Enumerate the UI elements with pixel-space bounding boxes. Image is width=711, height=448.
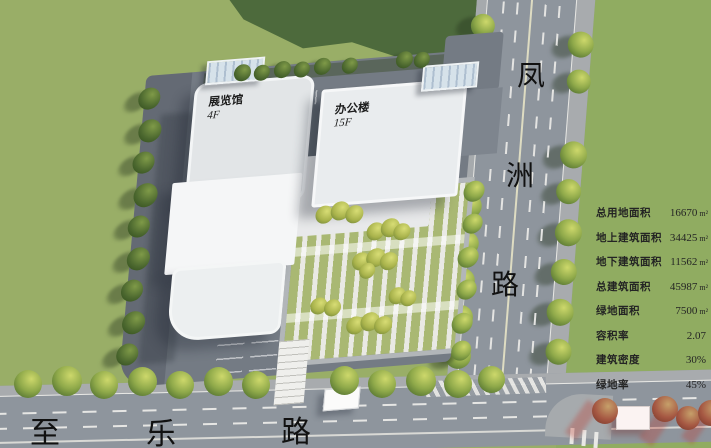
tree-icon bbox=[128, 367, 157, 396]
stat-value: 45% bbox=[686, 379, 708, 391]
stat-label: 绿地面积 bbox=[596, 303, 640, 318]
tree-icon bbox=[592, 398, 618, 424]
road-label-zhile-char: 至 bbox=[30, 408, 60, 448]
stat-value: 30% bbox=[686, 354, 708, 366]
stat-row: 建筑密度30% bbox=[596, 352, 708, 367]
stat-label: 建筑密度 bbox=[596, 352, 640, 367]
road-label-fengzhou-char: 洲 bbox=[506, 154, 534, 194]
tree-icon bbox=[368, 370, 396, 398]
stat-row: 总建筑面积45987m² bbox=[596, 279, 708, 294]
stat-value: 45987m² bbox=[670, 281, 708, 293]
stat-value: 11562m² bbox=[670, 256, 708, 268]
stat-row: 绿地率45% bbox=[596, 377, 708, 392]
south-walkway bbox=[274, 339, 310, 405]
stat-row: 地上建筑面积34425m² bbox=[596, 230, 708, 245]
exhibition-hall-lower bbox=[166, 259, 287, 342]
tree-icon bbox=[242, 371, 270, 399]
stat-value: 34425m² bbox=[670, 232, 708, 244]
stat-label: 地上建筑面积 bbox=[596, 230, 662, 245]
tree-icon bbox=[166, 371, 194, 399]
tree-icon bbox=[90, 371, 118, 399]
stat-value: 2.07 bbox=[687, 330, 708, 342]
tree-icon bbox=[676, 406, 700, 430]
stat-label: 总建筑面积 bbox=[596, 279, 651, 294]
stat-label: 总用地面积 bbox=[596, 205, 651, 220]
road-label-fengzhou-char: 路 bbox=[491, 263, 519, 303]
stat-value: 16670m² bbox=[670, 207, 708, 219]
road-label-zhile-char: 乐 bbox=[146, 409, 176, 448]
tree-icon bbox=[652, 396, 678, 422]
glass-canopy bbox=[421, 61, 479, 91]
stat-row: 容积率2.07 bbox=[596, 328, 708, 343]
stat-label: 绿地率 bbox=[596, 377, 629, 392]
corner-kiosk bbox=[616, 406, 650, 430]
stat-row: 总用地面积16670m² bbox=[596, 205, 708, 220]
road-label-zhile-char: 路 bbox=[281, 407, 311, 448]
stat-label: 容积率 bbox=[596, 328, 629, 343]
tree-icon bbox=[444, 370, 472, 398]
site-plan-rendering: 展览馆 4F 办公楼 15F 凤 洲 路 至 乐 路 总用地面积16670m² … bbox=[0, 0, 711, 448]
tree-icon bbox=[204, 367, 233, 396]
stat-value: 7500m² bbox=[675, 305, 708, 317]
stat-row: 地下建筑面积11562m² bbox=[596, 254, 708, 269]
tree-icon bbox=[52, 366, 82, 396]
road-label-fengzhou-char: 凤 bbox=[517, 54, 545, 94]
tree-icon bbox=[14, 370, 42, 398]
stat-label: 地下建筑面积 bbox=[596, 254, 662, 269]
tree-icon bbox=[478, 366, 505, 393]
exhibition-hall-floors: 4F bbox=[207, 107, 243, 124]
statistics-table: 总用地面积16670m² 地上建筑面积34425m² 地下建筑面积11562m²… bbox=[596, 205, 708, 401]
office-building-floors: 15F bbox=[333, 115, 369, 132]
tree-icon bbox=[406, 366, 436, 396]
tree-icon bbox=[330, 366, 359, 395]
office-building: 办公楼 15F bbox=[311, 78, 468, 208]
stat-row: 绿地面积7500m² bbox=[596, 303, 708, 318]
